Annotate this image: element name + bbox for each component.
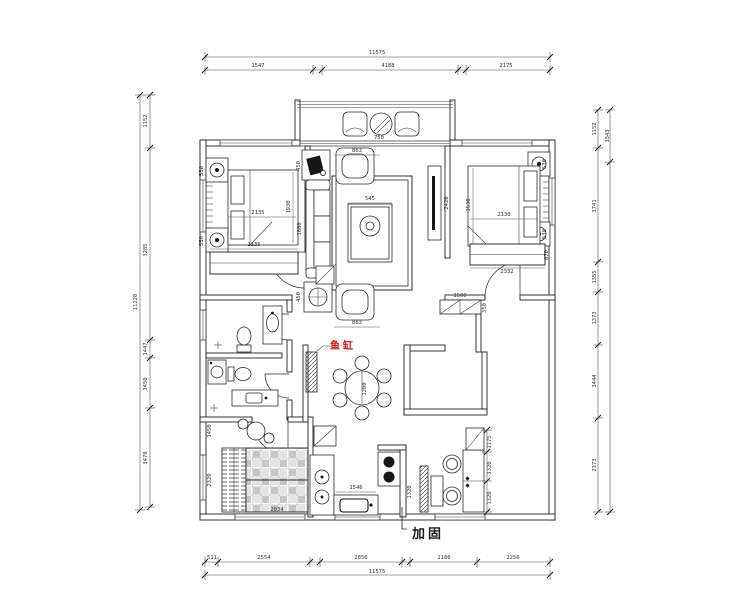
side-table bbox=[302, 150, 330, 180]
dim-left-4: 1450 bbox=[143, 377, 149, 390]
tatami-room bbox=[222, 419, 308, 512]
dim-cab-3: 1320 bbox=[487, 491, 493, 504]
lamp-table bbox=[304, 282, 332, 312]
dim-shoe-w: 1500 bbox=[453, 293, 466, 299]
door-right-bedroom bbox=[485, 262, 520, 297]
dim-right-outer: 1343 bbox=[605, 129, 611, 142]
dim-cab-1: 1175 bbox=[487, 435, 493, 448]
balcony-chair bbox=[343, 112, 367, 136]
dim-left-3: 1447 bbox=[143, 342, 149, 355]
dim-chain-bottom-segments bbox=[202, 557, 553, 567]
sink-counter bbox=[310, 455, 378, 515]
dim-right-wardrobe: 2332 bbox=[500, 269, 513, 275]
balcony-chair bbox=[395, 112, 419, 136]
floor-drain-icon bbox=[214, 341, 222, 349]
dim-right-bed-w: 2130 bbox=[497, 212, 510, 218]
dim-tv: 2420 bbox=[444, 196, 450, 209]
balcony bbox=[343, 112, 419, 136]
dim-left-overall: 11220 bbox=[133, 294, 139, 311]
fish-tank-leader bbox=[317, 346, 330, 351]
dim-tatami-top: 1450 bbox=[207, 424, 213, 437]
dim-bottom-5: 2256 bbox=[506, 555, 519, 561]
dim-sofa: 1800 bbox=[297, 222, 303, 235]
dim-right-6: 2173 bbox=[592, 458, 598, 471]
round-chair bbox=[443, 455, 461, 473]
dim-left-5: 3478 bbox=[143, 451, 149, 464]
dim-chain-right-outer bbox=[605, 107, 615, 515]
dim-left-1: 1152 bbox=[143, 114, 149, 127]
dim-bottom-4: 2180 bbox=[437, 555, 450, 561]
dim-left-ns-top: 550 bbox=[199, 166, 205, 176]
dim-dining: 1200 bbox=[362, 382, 368, 395]
dim-right-2: 3741 bbox=[592, 199, 598, 212]
vanity bbox=[263, 306, 282, 344]
dim-tatami-bot: 2034 bbox=[270, 507, 284, 513]
dim-left-bed-l: 1930 bbox=[286, 200, 292, 213]
end-table bbox=[316, 266, 334, 284]
dim-coffee: 545 bbox=[365, 196, 375, 202]
dim-balcony-table: 750 bbox=[374, 135, 384, 141]
dim-top-overall: 11575 bbox=[369, 50, 386, 56]
dim-left-wardrobe: 2135 bbox=[247, 242, 260, 248]
floor-plan-drawing: 11575 1547 4188 2175 511 2554 2856 2180 … bbox=[0, 0, 740, 600]
range-hood-icon bbox=[314, 426, 336, 446]
tv-cabinet bbox=[428, 166, 441, 240]
dim-chain-right-segments bbox=[593, 107, 603, 515]
fish-tank bbox=[306, 352, 317, 392]
dim-right-ns-bot: 530 bbox=[542, 229, 548, 239]
dim-left-2: 3285 bbox=[143, 243, 149, 256]
tv-icon bbox=[432, 176, 435, 230]
bed bbox=[468, 166, 540, 246]
dim-left-ns-bot: 550 bbox=[199, 236, 205, 246]
dim-right-bed-l: 1530 bbox=[466, 198, 472, 211]
dim-tatami-side: 2320 bbox=[207, 473, 213, 486]
washing-machine-icon bbox=[208, 360, 226, 384]
stove-icon bbox=[378, 452, 400, 486]
dim-bottom-2: 2554 bbox=[257, 555, 271, 561]
shoe-cabinet bbox=[440, 300, 481, 314]
dim-side-bot: 450 bbox=[296, 292, 302, 302]
radiator-icon bbox=[206, 186, 213, 228]
coffee-table bbox=[348, 204, 392, 262]
dim-kitchen-w: 1546 bbox=[349, 485, 362, 491]
floor-drain-icon bbox=[210, 404, 218, 412]
dim-bottom-1: 511 bbox=[207, 555, 217, 561]
dim-right-wardrobe-d: 670 bbox=[544, 250, 550, 260]
dim-left-bed-w: 2135 bbox=[251, 210, 264, 216]
dim-right-1: 1152 bbox=[592, 122, 598, 135]
vanity bbox=[232, 390, 278, 406]
right-bedroom bbox=[468, 152, 550, 265]
screen-partition bbox=[420, 466, 428, 512]
entry bbox=[440, 300, 481, 314]
dim-right-ns-top: 530 bbox=[542, 159, 548, 169]
dining-area bbox=[306, 346, 391, 420]
round-chair bbox=[443, 487, 461, 505]
dim-chain-left-segments bbox=[145, 92, 155, 510]
left-bedroom bbox=[206, 158, 298, 274]
dim-top-1: 1547 bbox=[251, 63, 264, 69]
dim-living-bot: 863 bbox=[352, 320, 362, 326]
dim-side-top: 450 bbox=[296, 161, 302, 171]
dim-cab-2: 1320 bbox=[487, 461, 493, 474]
kitchen bbox=[310, 426, 400, 515]
living-room bbox=[302, 148, 441, 320]
toilet-icon bbox=[228, 367, 251, 381]
sofa bbox=[306, 180, 330, 278]
dim-right-4: 1373 bbox=[592, 311, 598, 324]
dim-top-2: 4188 bbox=[381, 63, 394, 69]
cabinet-column bbox=[463, 428, 484, 512]
dim-top-3: 2175 bbox=[499, 63, 512, 69]
dim-bottom-overall: 11575 bbox=[369, 569, 386, 575]
dim-shoe-d: 350 bbox=[482, 303, 488, 313]
dim-kitchen-d: 1320 bbox=[407, 485, 413, 498]
side-table bbox=[431, 476, 443, 506]
bathroom-bottom bbox=[208, 360, 278, 412]
dim-living-top: 863 bbox=[352, 148, 362, 154]
dim-bottom-3: 2856 bbox=[354, 555, 367, 561]
fish-tank-label: 鱼缸 bbox=[330, 339, 356, 352]
seating-area bbox=[420, 428, 484, 512]
dim-right-3: 1355 bbox=[592, 270, 598, 283]
balcony-table bbox=[370, 113, 392, 135]
tea-table bbox=[238, 419, 274, 443]
dim-right-5: 3444 bbox=[592, 374, 598, 388]
radiator-icon bbox=[543, 182, 549, 218]
toilet-icon bbox=[237, 327, 251, 352]
bathroom-top bbox=[214, 306, 282, 352]
reinforce-label: 加固 bbox=[411, 527, 444, 542]
floor-plan-canvas: 11575 1547 4188 2175 511 2554 2856 2180 … bbox=[0, 0, 740, 600]
